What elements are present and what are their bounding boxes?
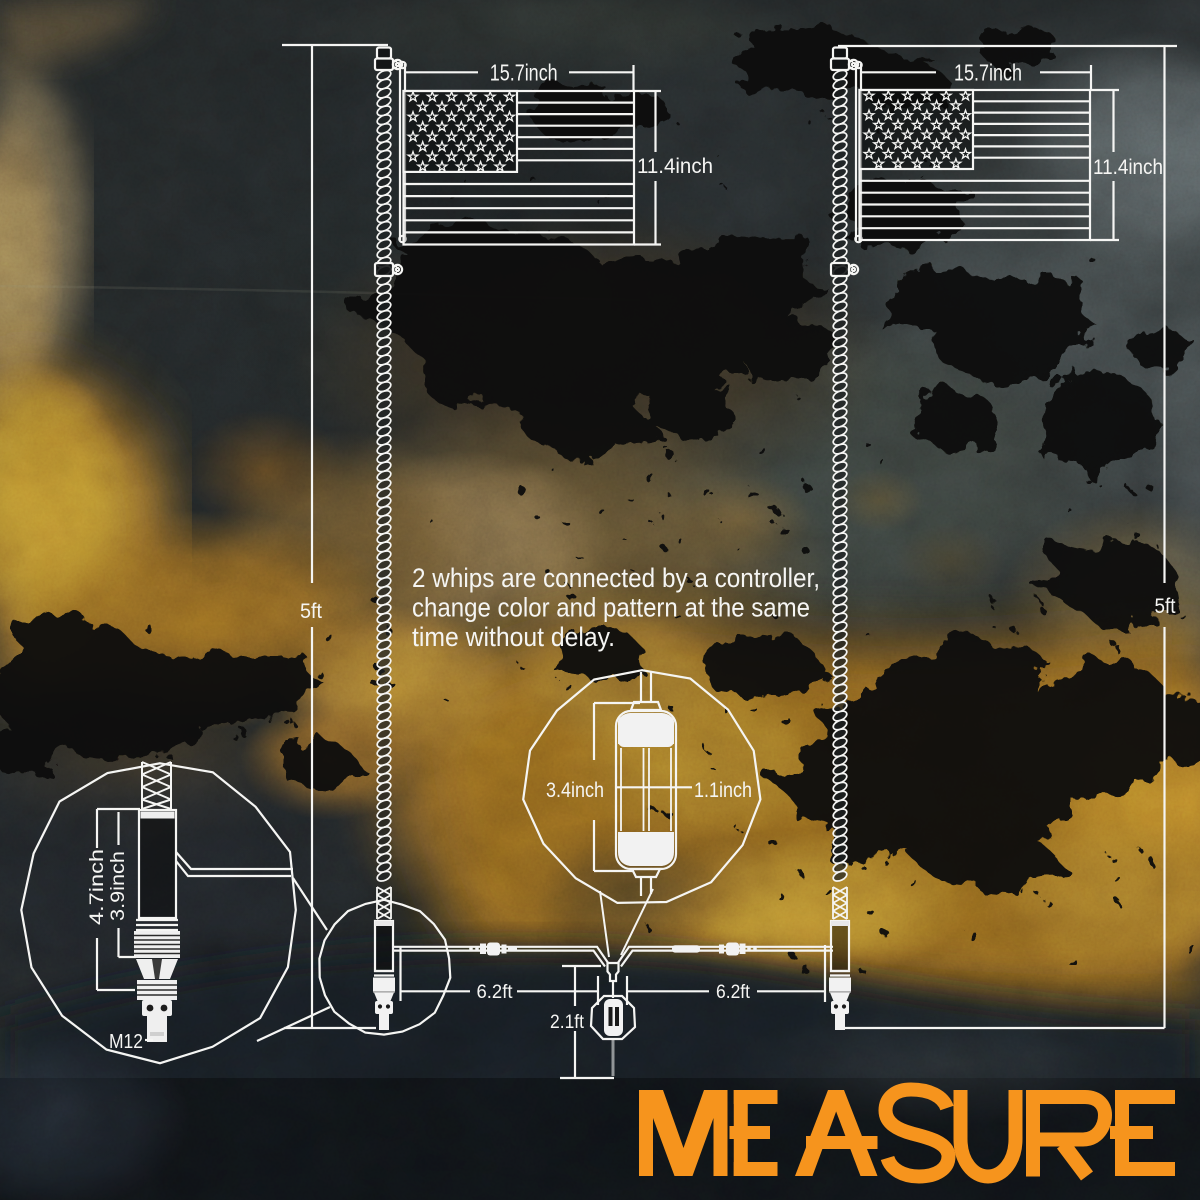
svg-text:11.4inch: 11.4inch bbox=[637, 155, 713, 178]
svg-text:15.7inch: 15.7inch bbox=[490, 60, 558, 86]
svg-text:5ft: 5ft bbox=[1155, 595, 1176, 618]
svg-text:4.7inch: 4.7inch bbox=[87, 849, 108, 925]
svg-text:2 whips are connected by a con: 2 whips are connected by a controller, bbox=[412, 563, 820, 593]
svg-text:3.4inch: 3.4inch bbox=[546, 779, 604, 802]
svg-text:2.1ft: 2.1ft bbox=[550, 1012, 585, 1033]
svg-text:6.2ft: 6.2ft bbox=[477, 982, 514, 1003]
svg-text:15.7inch: 15.7inch bbox=[954, 60, 1022, 86]
svg-text:1.1inch: 1.1inch bbox=[694, 779, 752, 802]
svg-text:6.2ft: 6.2ft bbox=[716, 982, 751, 1003]
svg-text:3.9inch: 3.9inch bbox=[108, 851, 129, 921]
svg-text:time without delay.: time without delay. bbox=[412, 622, 615, 652]
svg-text:M12: M12 bbox=[109, 1031, 143, 1053]
svg-text:11.4inch: 11.4inch bbox=[1093, 156, 1163, 179]
svg-text:change color and pattern at th: change color and pattern at the same bbox=[412, 593, 810, 623]
svg-text:5ft: 5ft bbox=[300, 600, 322, 623]
